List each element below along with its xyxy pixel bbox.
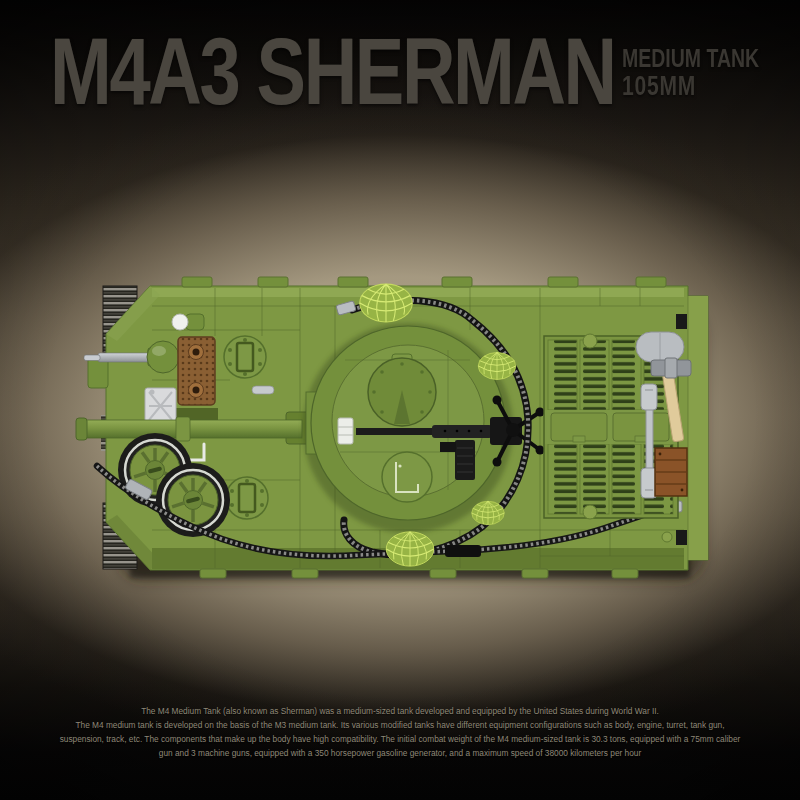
crew-hatch-rear	[226, 477, 268, 519]
engine-hatches	[545, 410, 677, 444]
side-skirt	[688, 296, 708, 560]
helmet-1	[360, 284, 413, 322]
headlamp	[172, 314, 204, 330]
ventilator-dome	[147, 341, 179, 373]
radiator-grille-brown	[178, 337, 215, 405]
subtitle-block: MEDIUM TANK 105MM	[622, 44, 759, 100]
deck-stud	[583, 334, 597, 348]
helmet-3	[472, 501, 505, 524]
loader-hatch	[382, 452, 432, 502]
description-line: The M4 Medium Tank (also known as Sherma…	[0, 705, 800, 719]
crew-hatch-front	[224, 336, 266, 378]
description-line: gun and 3 machine guns, equipped with a …	[0, 747, 800, 761]
product-description: The M4 Medium Tank (also known as Sherma…	[0, 705, 800, 761]
deck-stud	[583, 505, 597, 519]
product-poster: M4A3 SHERMAN MEDIUM TANK 105MM The M4 Me…	[0, 0, 800, 800]
skirt-notch-top	[676, 314, 687, 329]
deck-stud	[662, 532, 672, 542]
helmet-4	[386, 532, 434, 566]
page-title: M4A3 SHERMAN	[50, 34, 615, 108]
helmet-2	[478, 353, 516, 380]
skirt-notch-bottom	[676, 530, 687, 545]
periscope	[338, 418, 353, 444]
hull-step-block	[88, 358, 108, 388]
description-line: The M4 medium tank is developed on the b…	[0, 719, 800, 733]
subtitle-medium-tank: MEDIUM TANK	[622, 44, 759, 72]
subtitle-caliber: 105MM	[622, 72, 759, 100]
wood-crate	[655, 448, 687, 496]
description-line: suspension, track, etc. The components t…	[0, 733, 800, 747]
jerry-can	[145, 388, 176, 424]
silver-fitting	[252, 386, 274, 394]
